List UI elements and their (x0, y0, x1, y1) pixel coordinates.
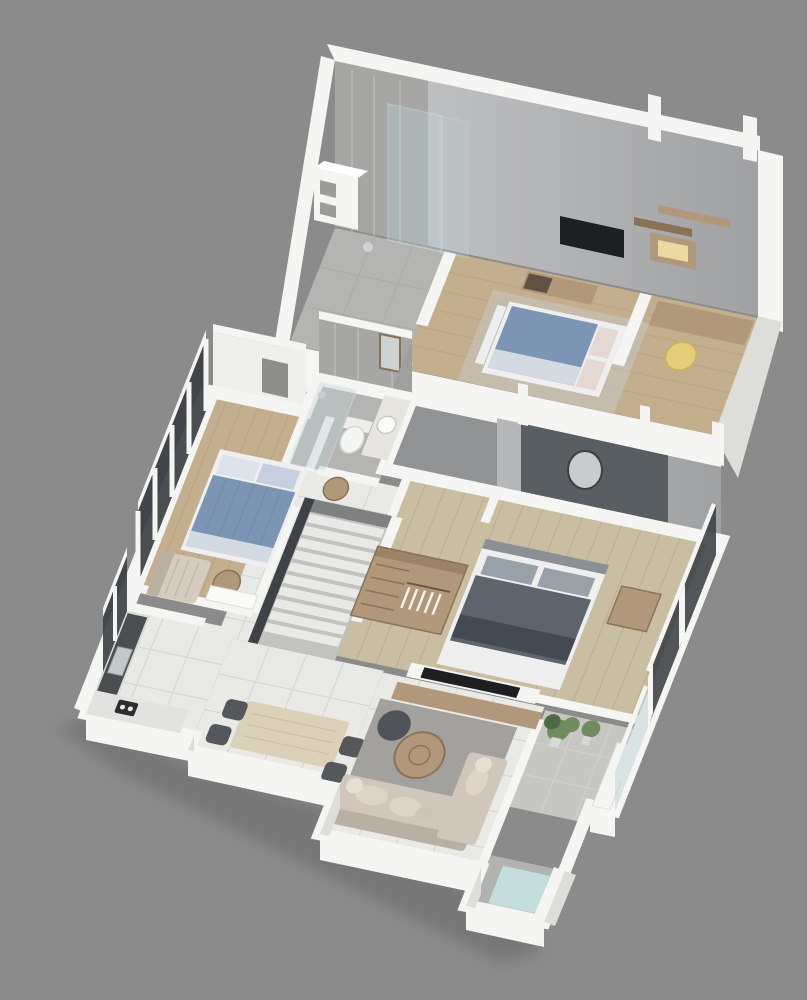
shower-glass-panel (388, 104, 442, 252)
wall-post (648, 94, 661, 142)
niche-wall-front (314, 168, 358, 230)
floorplan-render (0, 0, 807, 1000)
shower-head (363, 242, 373, 252)
balcony-fascia (590, 806, 615, 837)
right-wall-band (758, 150, 783, 332)
bathroom-mirror (380, 334, 400, 372)
corner-post (743, 115, 757, 162)
round-mirror (568, 451, 602, 489)
wall-niche (262, 358, 288, 398)
wall-post (518, 383, 528, 426)
wall-post (640, 405, 650, 450)
shower-glass-panel (440, 116, 468, 258)
corner-post (712, 421, 724, 466)
